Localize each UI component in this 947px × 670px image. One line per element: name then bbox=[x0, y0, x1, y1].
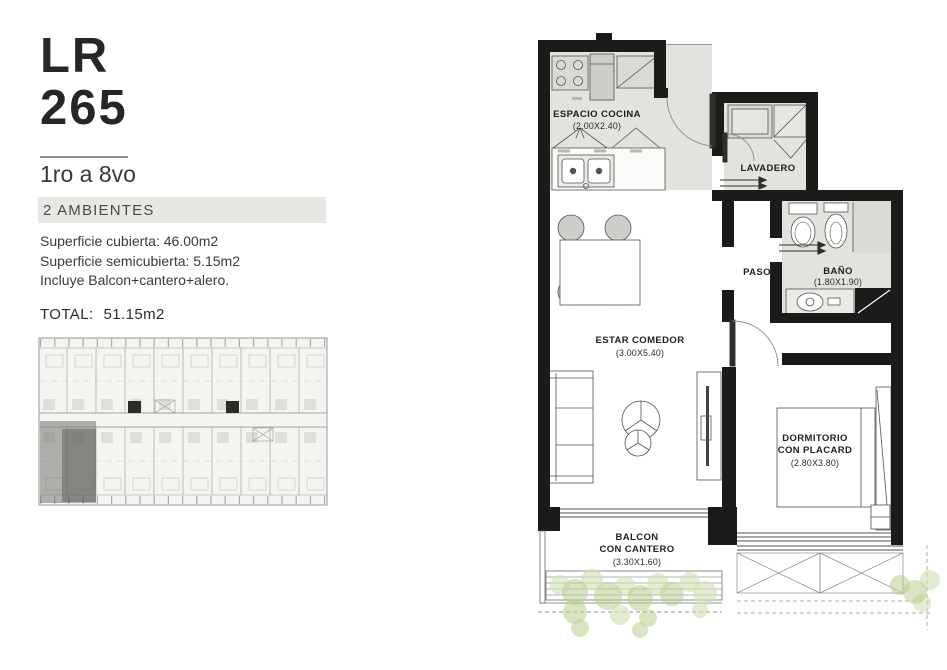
label-balcony-1: BALCON bbox=[615, 532, 658, 543]
label-bedroom-2: CON PLACARD bbox=[778, 445, 853, 456]
planter-plants bbox=[550, 569, 940, 638]
floor-plan: ESPACIO COCINA (2.00X2.40) LAVADERO PASO… bbox=[538, 33, 940, 638]
label-kitchen: ESPACIO COCINA bbox=[553, 109, 641, 120]
label-bath: BAÑO bbox=[823, 266, 853, 277]
key-plan-and-floor-plan: ESPACIO COCINA (2.00X2.40) LAVADERO PASO… bbox=[0, 0, 947, 670]
label-living: ESTAR COMEDOR bbox=[596, 335, 685, 346]
label-living-dims: (3.00X5.40) bbox=[616, 348, 664, 358]
label-bath-dims: (1.80X1.90) bbox=[814, 277, 862, 287]
label-bedroom-1: DORMITORIO bbox=[782, 433, 848, 444]
label-hall: PASO bbox=[743, 267, 771, 278]
label-bedroom-dims: (2.80X3.80) bbox=[791, 458, 839, 468]
label-kitchen-dims: (2.00X2.40) bbox=[573, 121, 621, 131]
label-laundry: LAVADERO bbox=[740, 163, 795, 174]
key-plan bbox=[39, 338, 327, 505]
plan-sheet: LR 265 1ro a 8vo 2 AMBIENTES Superficie … bbox=[0, 0, 947, 670]
label-balcony-2: CON CANTERO bbox=[599, 544, 674, 555]
key-plan-highlight bbox=[40, 421, 96, 503]
label-balcony-dims: (3.30X1.60) bbox=[613, 557, 661, 567]
